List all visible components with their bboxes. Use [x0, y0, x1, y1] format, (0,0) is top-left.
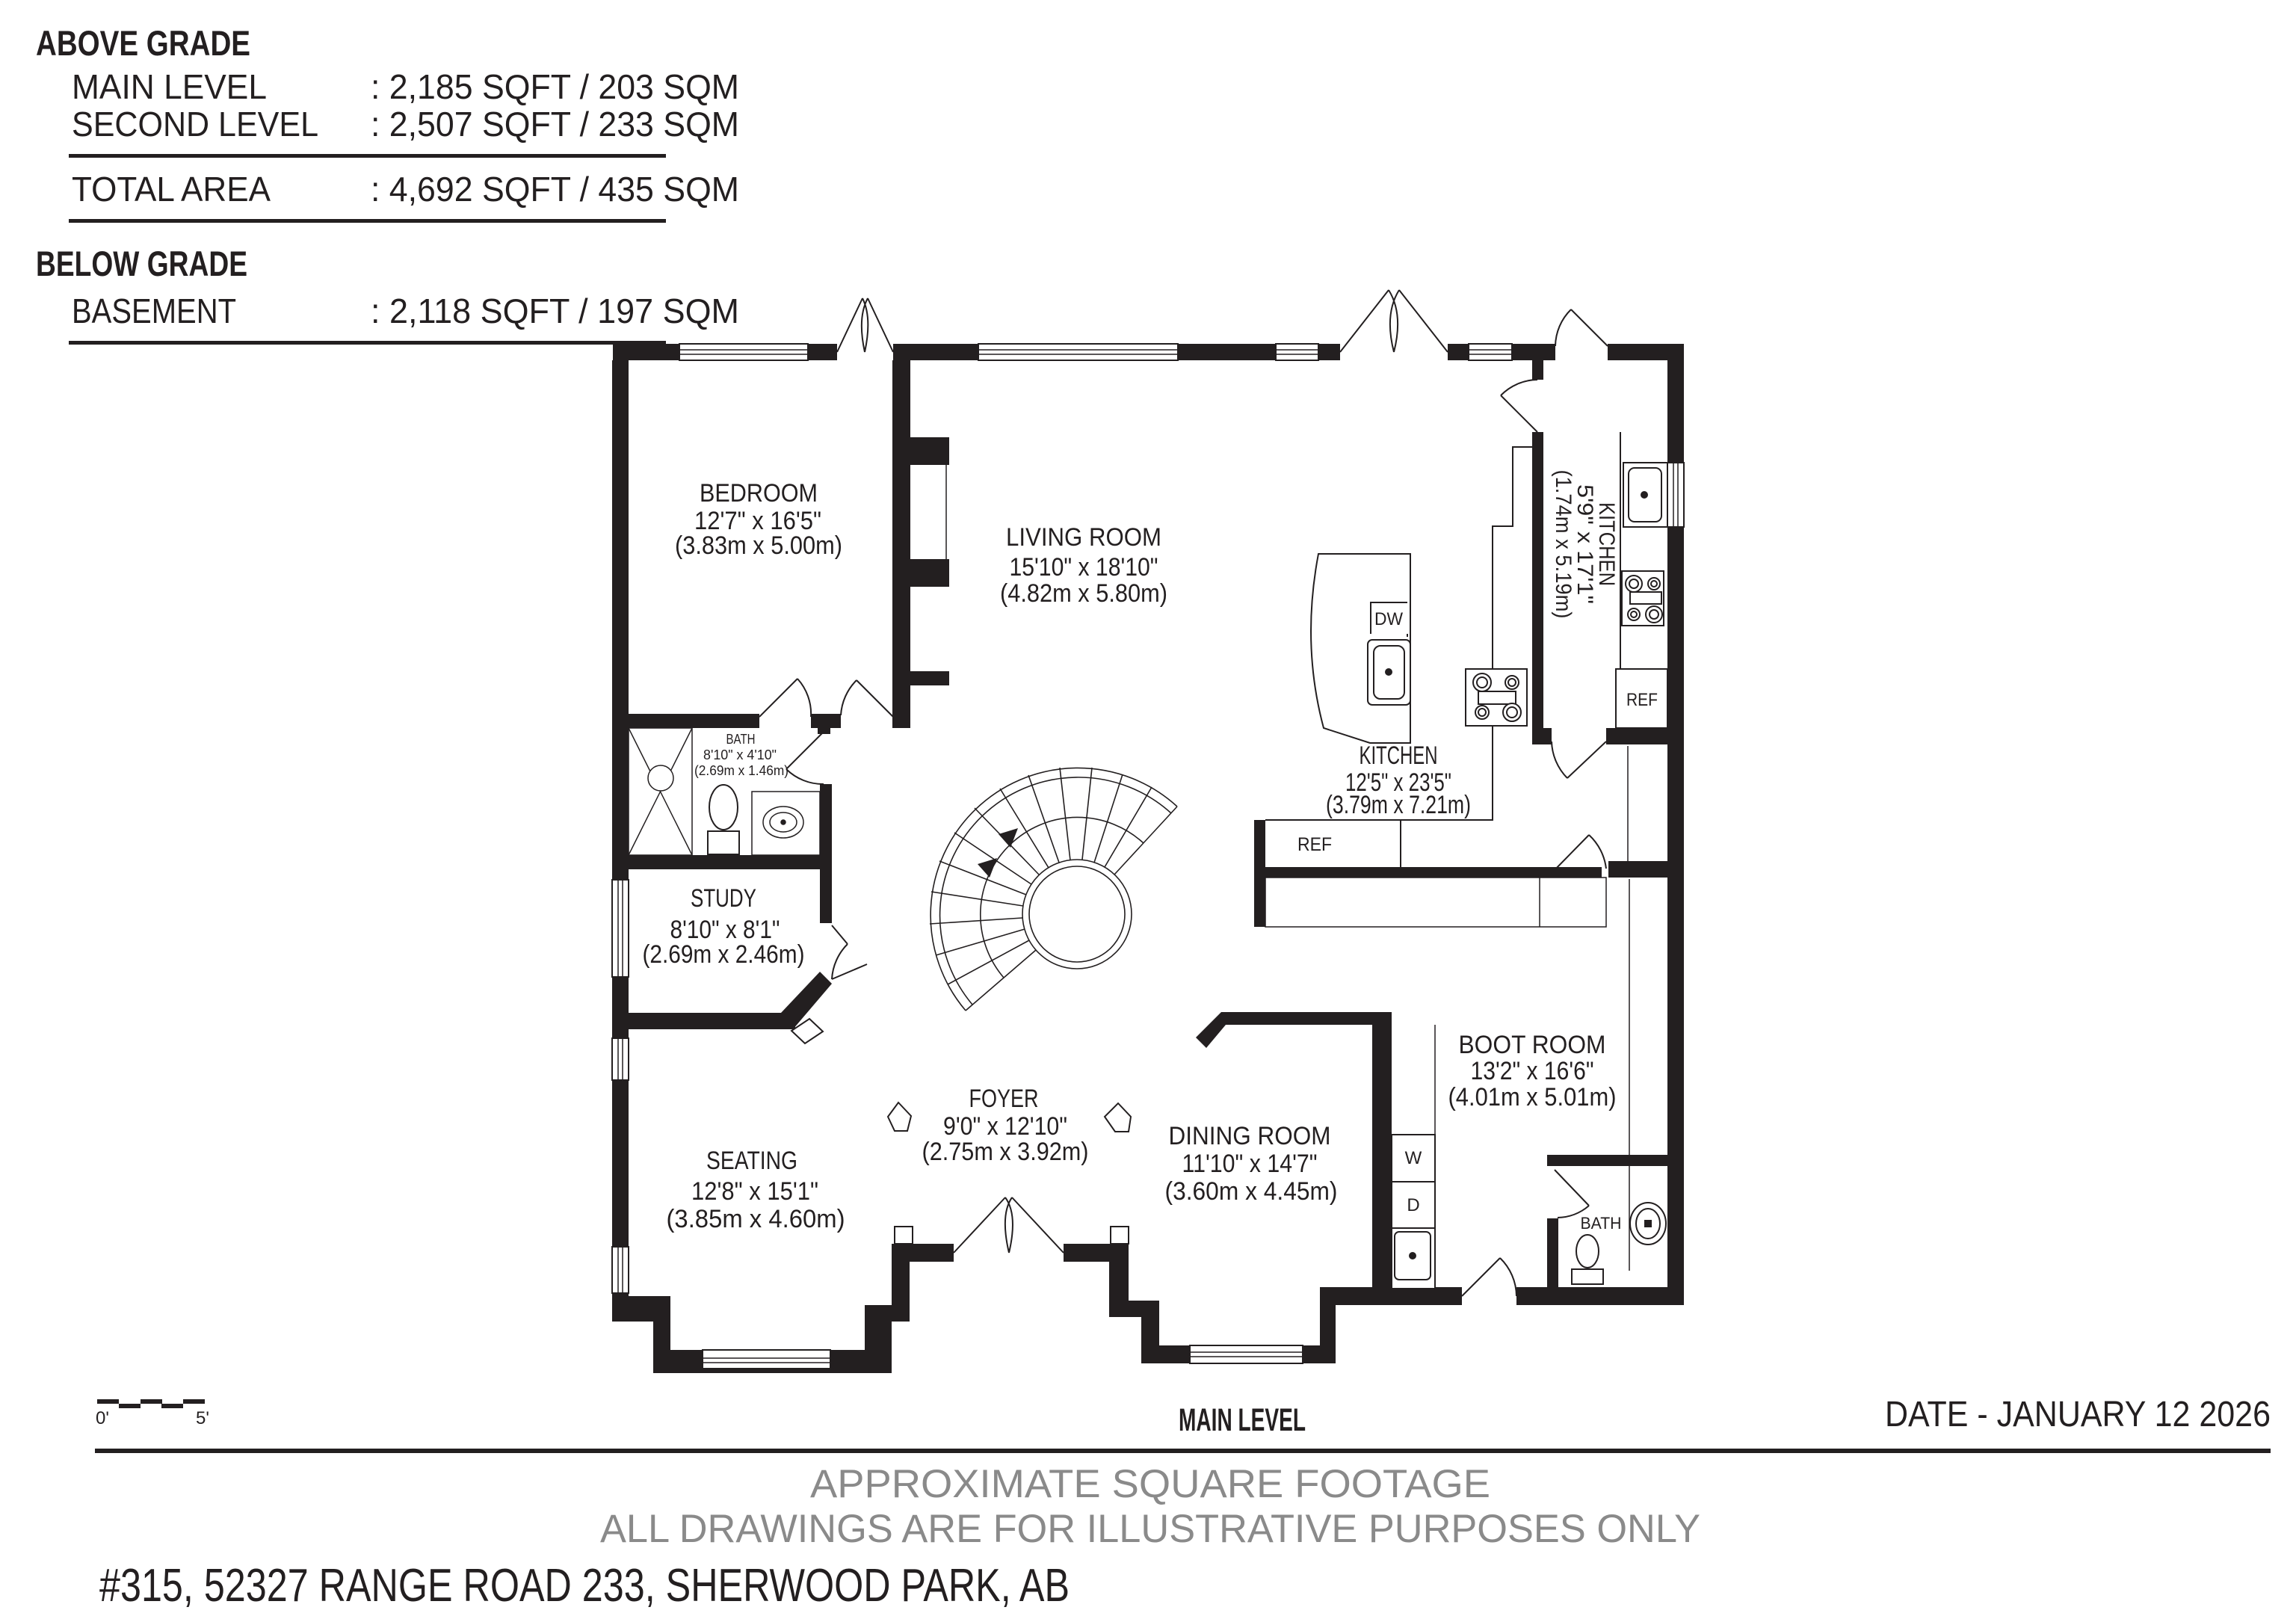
svg-text:(3.79m x 7.21m): (3.79m x 7.21m)	[1326, 791, 1471, 819]
svg-text:BASEMENT: BASEMENT	[72, 292, 236, 330]
svg-text:DW: DW	[1374, 609, 1403, 629]
svg-text:12'8" x 15'1": 12'8" x 15'1"	[691, 1177, 818, 1206]
svg-text:FOYER: FOYER	[969, 1085, 1039, 1113]
svg-text:REF: REF	[1626, 690, 1658, 710]
svg-text:(2.69m x 2.46m): (2.69m x 2.46m)	[643, 940, 805, 969]
svg-text:(4.01m x 5.01m): (4.01m x 5.01m)	[1448, 1083, 1617, 1111]
svg-text:DATE - JANUARY 12 2026: DATE - JANUARY 12 2026	[1885, 1395, 2271, 1434]
svg-text:15'10" x 18'10": 15'10" x 18'10"	[1010, 553, 1158, 582]
svg-text:(3.83m x 5.00m): (3.83m x 5.00m)	[675, 531, 842, 560]
svg-text:0': 0'	[96, 1408, 109, 1428]
svg-text:MAIN LEVEL: MAIN LEVEL	[72, 67, 267, 106]
svg-text:MAIN LEVEL: MAIN LEVEL	[1179, 1402, 1306, 1438]
svg-text:: 2,507 SQFT / 233 SQM: : 2,507 SQFT / 233 SQM	[371, 105, 739, 144]
svg-text:11'10" x 14'7": 11'10" x 14'7"	[1182, 1150, 1318, 1178]
svg-text:: 2,185 SQFT / 203 SQM: : 2,185 SQFT / 203 SQM	[371, 67, 739, 106]
svg-text:LIVING ROOM: LIVING ROOM	[1006, 523, 1161, 552]
svg-text:(1.74m x 5.19m): (1.74m x 5.19m)	[1551, 470, 1576, 619]
svg-text:BELOW GRADE: BELOW GRADE	[36, 244, 247, 283]
svg-text:ALL DRAWINGS ARE FOR ILLUSTRAT: ALL DRAWINGS ARE FOR ILLUSTRATIVE PURPOS…	[600, 1507, 1700, 1551]
svg-text:9'0" x 12'10": 9'0" x 12'10"	[943, 1112, 1067, 1141]
svg-text:BATH: BATH	[1581, 1214, 1622, 1233]
svg-text:(4.82m x 5.80m): (4.82m x 5.80m)	[1000, 579, 1167, 608]
svg-text:(3.85m x 4.60m): (3.85m x 4.60m)	[667, 1205, 845, 1233]
svg-text:ABOVE GRADE: ABOVE GRADE	[36, 23, 250, 63]
svg-text:: 2,118 SQFT / 197 SQM: : 2,118 SQFT / 197 SQM	[371, 292, 739, 330]
svg-text:SECOND LEVEL: SECOND LEVEL	[72, 105, 318, 144]
svg-text:W: W	[1405, 1148, 1422, 1168]
svg-text:#315, 52327 RANGE ROAD 233, SH: #315, 52327 RANGE ROAD 233, SHERWOOD PAR…	[99, 1560, 1070, 1612]
svg-text:BOOT ROOM: BOOT ROOM	[1459, 1031, 1606, 1059]
svg-text:BATH: BATH	[726, 732, 756, 747]
svg-text:D: D	[1407, 1195, 1419, 1215]
svg-text:DINING ROOM: DINING ROOM	[1169, 1122, 1331, 1150]
svg-text:(3.60m x 4.45m): (3.60m x 4.45m)	[1165, 1177, 1338, 1206]
svg-text:8'10" x 4'10": 8'10" x 4'10"	[703, 747, 777, 762]
svg-text:(2.69m x 1.46m): (2.69m x 1.46m)	[694, 763, 789, 778]
svg-text:REF: REF	[1297, 834, 1332, 855]
svg-text:TOTAL AREA: TOTAL AREA	[72, 170, 271, 209]
svg-text:: 4,692 SQFT / 435 SQM: : 4,692 SQFT / 435 SQM	[371, 170, 739, 209]
svg-text:(2.75m x 3.92m): (2.75m x 3.92m)	[922, 1138, 1089, 1166]
svg-text:SEATING: SEATING	[706, 1147, 797, 1175]
svg-text:KITCHEN: KITCHEN	[1360, 741, 1438, 770]
svg-text:STUDY: STUDY	[691, 884, 756, 913]
svg-text:APPROXIMATE SQUARE FOOTAGE: APPROXIMATE SQUARE FOOTAGE	[810, 1462, 1490, 1506]
svg-text:13'2" x 16'6": 13'2" x 16'6"	[1471, 1057, 1594, 1085]
svg-text:BEDROOM: BEDROOM	[700, 479, 818, 508]
svg-text:5': 5'	[196, 1408, 209, 1428]
